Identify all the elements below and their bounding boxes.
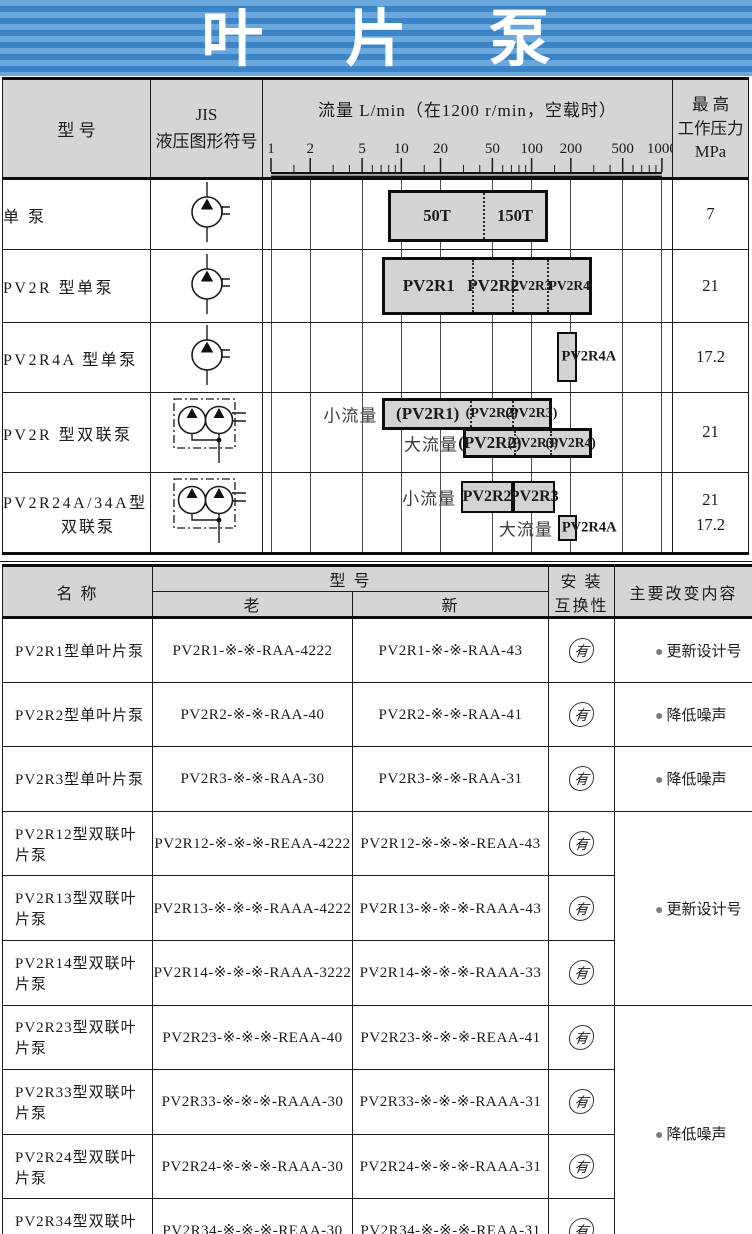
change-bullet-icon: ●	[655, 645, 663, 660]
new-model-cell: PV2R12-※-※-※-REAA-43	[353, 811, 549, 876]
flow-gridline	[570, 180, 571, 249]
table-separator-rule	[0, 555, 752, 562]
bar-segment-label: (PV2R1)	[385, 401, 470, 427]
header-compatibility: 安 装 互换性	[549, 566, 615, 618]
main-change-cell: ●降低噪声	[615, 1005, 752, 1234]
model-label: 单 泵	[3, 179, 151, 250]
pump-name-cell: PV2R14型双联叶片泵	[3, 940, 153, 1005]
header-main-changes: 主要改变内容	[615, 566, 752, 618]
bar-segment-label: PV2R3	[512, 260, 547, 312]
model-label: PV2R 型双联泵	[3, 393, 151, 473]
model-label: PV2R4A 型单泵	[3, 323, 151, 393]
flow-range-bar: (PV2R1)(PV2R2)(PV2R3)	[382, 398, 552, 430]
single-pump-symbol-icon	[184, 252, 230, 316]
svg-text:1: 1	[267, 141, 275, 157]
page-title: 叶 片 泵	[201, 2, 580, 75]
compatibility-cell: 有	[549, 1199, 615, 1234]
comparison-table-row: PV2R23型双联叶片泵PV2R23-※-※-※-REAA-40PV2R23-※…	[3, 1005, 752, 1070]
flow-gridline	[310, 180, 311, 249]
flow-gridline	[310, 393, 311, 472]
compatibility-cell: 有	[549, 747, 615, 812]
flow-gridline	[661, 393, 662, 472]
svg-text:500: 500	[611, 141, 634, 157]
compat-yes-circle: 有	[568, 1089, 596, 1114]
flow-gridline	[271, 393, 272, 472]
flow-prefix-label: 小流量	[402, 485, 456, 510]
old-model-cell: PV2R33-※-※-※-RAAA-30	[153, 1070, 353, 1135]
flow-gridline	[362, 180, 363, 249]
change-bullet-icon: ●	[655, 1128, 663, 1143]
compat-yes-circle: 有	[568, 960, 596, 985]
compatibility-cell: 有	[549, 940, 615, 1005]
max-pressure-value: 21	[673, 250, 749, 323]
svg-text:5: 5	[358, 141, 366, 157]
model-label: PV2R 型单泵	[3, 250, 151, 323]
max-pressure-value: 17.2	[673, 323, 749, 393]
flow-gridline	[622, 323, 623, 392]
compatibility-cell: 有	[549, 682, 615, 747]
jis-symbol-cell	[151, 473, 263, 554]
jis-symbol-cell	[151, 393, 263, 473]
flow-range-bar: PV2R3	[513, 481, 555, 513]
flow-gridline	[362, 473, 363, 552]
old-model-cell: PV2R3-※-※-RAA-30	[153, 747, 353, 812]
bar-segment-label: (PV2R3)	[512, 401, 550, 427]
compat-yes-circle: 有	[568, 1154, 596, 1179]
svg-text:1000: 1000	[647, 141, 673, 157]
flow-gridline	[271, 180, 272, 249]
flow-table-header-row: 型 号 JIS 液压图形符号 流量 L/min（在1200 r/min，空载时）…	[3, 79, 749, 179]
flow-range-bar: (PV2R2)(PV2R3)(PV2R4)	[463, 428, 592, 458]
flow-gridline	[310, 323, 311, 392]
model-label: PV2R24A/34A型双联泵	[3, 473, 151, 554]
pump-name-cell: PV2R12型双联叶片泵	[3, 811, 153, 876]
change-text: 降低噪声	[666, 1127, 726, 1143]
change-text: 降低噪声	[666, 772, 726, 788]
jis-label: JIS	[151, 102, 262, 128]
jis-label2: 液压图形符号	[151, 129, 262, 155]
comparison-table-row: PV2R2型单叶片泵PV2R2-※-※-RAA-40PV2R2-※-※-RAA-…	[3, 682, 752, 747]
flow-table-row: PV2R4A 型单泵 PV2R4A17.2	[3, 323, 749, 393]
flow-range-bar: 50T150T	[388, 190, 548, 242]
flow-gridline	[310, 250, 311, 322]
old-model-cell: PV2R14-※-※-※-RAAA-3222	[153, 940, 353, 1005]
flow-table-row: 单 泵 50T150T7	[3, 179, 749, 250]
pump-name-cell: PV2R2型单叶片泵	[3, 682, 153, 747]
new-model-cell: PV2R24-※-※-※-RAAA-31	[353, 1134, 549, 1199]
comparison-table-row: PV2R3型单叶片泵PV2R3-※-※-RAA-30PV2R3-※-※-RAA-…	[3, 747, 752, 812]
compatibility-cell: 有	[549, 1134, 615, 1199]
flow-range-bar: PV2R4A	[558, 515, 577, 541]
flow-log-axis: 1251020501002005001000	[263, 117, 673, 177]
pump-name-cell: PV2R1型单叶片泵	[3, 618, 153, 683]
flow-gridline	[661, 180, 662, 249]
header-model: 型 号	[3, 79, 151, 179]
bar-segment-label: 50T	[391, 193, 482, 239]
flow-gridline	[271, 250, 272, 322]
jis-symbol-cell	[151, 323, 263, 393]
change-bullet-icon: ●	[655, 709, 663, 724]
new-model-cell: PV2R33-※-※-※-RAAA-31	[353, 1070, 549, 1135]
compat-yes-circle: 有	[568, 702, 596, 727]
pump-name-cell: PV2R34型双联叶片泵	[3, 1199, 153, 1234]
max-pressure-value: 7	[673, 179, 749, 250]
header-model-group: 型 号	[153, 566, 549, 592]
flow-table-row: PV2R 型双联泵 小流量(PV2R1)(PV2R2)(PV2R3)大流量(PV…	[3, 393, 749, 473]
flow-gridline	[622, 393, 623, 472]
compat-yes-circle: 有	[568, 638, 596, 663]
flow-prefix-label: 大流量	[499, 516, 553, 541]
bar-segment-label: 150T	[483, 193, 546, 239]
flow-gridline	[531, 323, 532, 392]
flow-gridline	[440, 323, 441, 392]
new-model-cell: PV2R13-※-※-※-RAAA-43	[353, 876, 549, 941]
change-text: 更新设计号	[666, 644, 741, 660]
pump-name-cell: PV2R24型双联叶片泵	[3, 1134, 153, 1199]
compat-yes-circle: 有	[568, 1025, 596, 1050]
bar-segment-label: PV2R1	[385, 260, 472, 312]
svg-text:2: 2	[306, 141, 314, 157]
pump-name-cell: PV2R13型双联叶片泵	[3, 876, 153, 941]
new-model-cell: PV2R3-※-※-RAA-31	[353, 747, 549, 812]
comparison-table-row: PV2R1型单叶片泵PV2R1-※-※-RAA-4222PV2R1-※-※-RA…	[3, 618, 752, 683]
new-model-cell: PV2R1-※-※-RAA-43	[353, 618, 549, 683]
change-text: 更新设计号	[666, 902, 741, 918]
change-bullet-icon: ●	[655, 903, 663, 918]
flow-table-row: PV2R 型单泵 PV2R1PV2R2PV2R3PV2R421	[3, 250, 749, 323]
bar-segment-label: PV2R2	[463, 483, 511, 511]
flow-gridline	[661, 323, 662, 392]
flow-chart-cell: PV2R4A	[263, 323, 673, 393]
flow-gridline	[362, 323, 363, 392]
old-model-cell: PV2R12-※-※-※-REAA-4222	[153, 811, 353, 876]
flow-gridline	[310, 473, 311, 552]
flow-gridline	[401, 323, 402, 392]
compatibility-cell: 有	[549, 811, 615, 876]
compat-yes-circle: 有	[568, 896, 596, 921]
old-model-cell: PV2R2-※-※-RAA-40	[153, 682, 353, 747]
new-model-cell: PV2R14-※-※-※-RAAA-33	[353, 940, 549, 1005]
flow-gridline	[492, 323, 493, 392]
flow-range-bar: PV2R2	[461, 481, 513, 513]
flow-prefix-label: 大流量	[404, 431, 458, 456]
bar-outside-label: PV2R4A	[561, 349, 616, 366]
flow-gridline	[271, 473, 272, 552]
bar-segment-label: PV2R2	[472, 260, 512, 312]
jis-symbol-cell	[151, 250, 263, 323]
compatibility-cell: 有	[549, 618, 615, 683]
bar-segment-label: PV2R3	[515, 483, 553, 511]
old-model-cell: PV2R1-※-※-RAA-4222	[153, 618, 353, 683]
double-pump-symbol-icon	[164, 473, 250, 547]
compatibility-cell: 有	[549, 1005, 615, 1070]
flow-gridline	[622, 250, 623, 322]
double-pump-symbol-icon	[164, 393, 250, 467]
main-change-cell: ●降低噪声	[615, 682, 752, 747]
change-text: 降低噪声	[666, 708, 726, 724]
flow-gridline	[661, 473, 662, 552]
pump-name-cell: PV2R23型双联叶片泵	[3, 1005, 153, 1070]
flow-range-bar: PV2R1PV2R2PV2R3PV2R4	[382, 257, 592, 315]
compatibility-cell: 有	[549, 1070, 615, 1135]
header-new-model: 新	[353, 592, 549, 618]
main-change-cell: ●降低噪声	[615, 747, 752, 812]
flow-prefix-label: 小流量	[323, 402, 377, 427]
bar-segment-label: (PV2R2)	[466, 431, 514, 455]
flow-chart-cell: 50T150T	[263, 179, 673, 250]
page: 叶 片 泵 型 号 JIS 液压图形符号 流量 L/min（在1200 r/mi…	[0, 0, 752, 1234]
header-name: 名 称	[3, 566, 153, 618]
main-change-cell: ●更新设计号	[615, 811, 752, 1005]
compat-yes-circle: 有	[568, 1218, 596, 1234]
new-model-cell: PV2R23-※-※-※-REAA-41	[353, 1005, 549, 1070]
svg-text:200: 200	[560, 141, 583, 157]
new-model-cell: PV2R34-※-※-※-REAA-31	[353, 1199, 549, 1234]
new-model-cell: PV2R2-※-※-RAA-41	[353, 682, 549, 747]
flow-chart-cell: 小流量PV2R2PV2R3大流量PV2R4A	[263, 473, 673, 554]
comparison-header-row1: 名 称 型 号 安 装 互换性 主要改变内容	[3, 566, 752, 592]
svg-text:10: 10	[394, 141, 409, 157]
single-pump-symbol-icon	[184, 323, 230, 387]
pump-name-cell: PV2R3型单叶片泵	[3, 747, 153, 812]
compat-yes-circle: 有	[568, 766, 596, 791]
old-model-cell: PV2R24-※-※-※-RAAA-30	[153, 1134, 353, 1199]
old-model-cell: PV2R23-※-※-※-REAA-40	[153, 1005, 353, 1070]
flow-table-row: PV2R24A/34A型双联泵 小流量PV2R2PV2R3大流量PV2R4A21…	[3, 473, 749, 554]
max-pressure-value: 2117.2	[673, 473, 749, 554]
svg-text:20: 20	[433, 141, 448, 157]
title-banner: 叶 片 泵	[0, 0, 752, 77]
change-bullet-icon: ●	[655, 773, 663, 788]
header-flow-scale: 流量 L/min（在1200 r/min，空载时） 12510205010020…	[263, 79, 673, 179]
flow-gridline	[622, 180, 623, 249]
compat-yes-circle: 有	[568, 831, 596, 856]
flow-chart-cell: 小流量(PV2R1)(PV2R2)(PV2R3)大流量(PV2R2)(PV2R3…	[263, 393, 673, 473]
bar-outside-label: PV2R4A	[562, 520, 617, 537]
main-change-cell: ●更新设计号	[615, 618, 752, 683]
comparison-table-row: PV2R12型双联叶片泵PV2R12-※-※-※-REAA-4222PV2R12…	[3, 811, 752, 876]
flow-gridline	[661, 250, 662, 322]
compatibility-cell: 有	[549, 876, 615, 941]
flow-gridline	[362, 250, 363, 322]
svg-text:50: 50	[485, 141, 500, 157]
model-comparison-table: 名 称 型 号 安 装 互换性 主要改变内容 老 新 PV2R1型单叶片泵PV2…	[2, 564, 752, 1234]
header-old-model: 老	[153, 592, 353, 618]
flow-gridline	[622, 473, 623, 552]
flow-gridline	[271, 323, 272, 392]
flow-range-table: 型 号 JIS 液压图形符号 流量 L/min（在1200 r/min，空载时）…	[2, 77, 749, 555]
pump-name-cell: PV2R33型双联叶片泵	[3, 1070, 153, 1135]
old-model-cell: PV2R34-※-※-※-REAA-30	[153, 1199, 353, 1234]
bar-segment-label: (PV2R4)	[550, 431, 589, 455]
header-jis-symbol: JIS 液压图形符号	[151, 79, 263, 179]
single-pump-symbol-icon	[184, 180, 230, 244]
flow-chart-cell: PV2R1PV2R2PV2R3PV2R4	[263, 250, 673, 323]
jis-symbol-cell	[151, 179, 263, 250]
svg-text:100: 100	[520, 141, 543, 157]
old-model-cell: PV2R13-※-※-※-RAAA-4222	[153, 876, 353, 941]
flow-range-bar: PV2R4A	[557, 332, 577, 382]
bar-segment-label: PV2R4	[547, 260, 589, 312]
header-max-pressure: 最 高 工作压力 MPa	[673, 79, 749, 179]
max-pressure-value: 21	[673, 393, 749, 473]
